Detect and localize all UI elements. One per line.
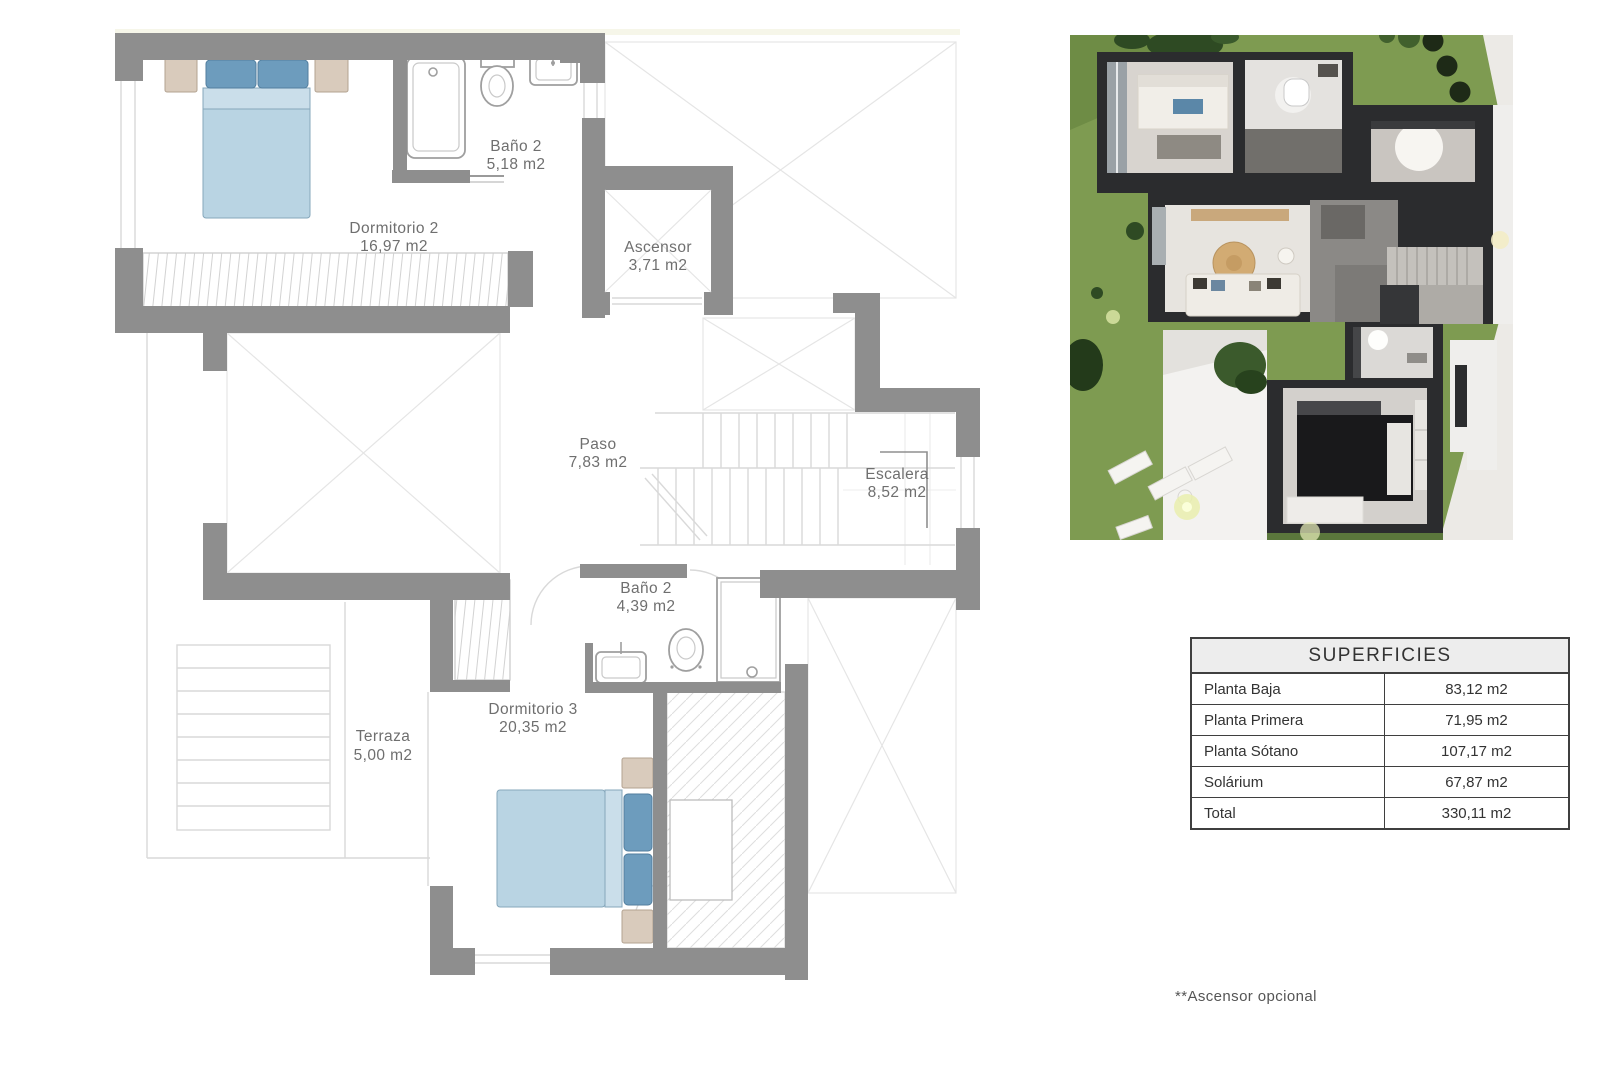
bedroom-top: [1107, 62, 1233, 173]
pillow: [258, 60, 308, 88]
row-value: 83,12 m2: [1385, 674, 1568, 704]
nightstand: [622, 910, 653, 943]
row-value: 67,87 m2: [1385, 767, 1568, 797]
hall-upper: [1371, 121, 1475, 182]
label-dorm2-area: 16,97 m2: [360, 238, 428, 255]
window-left-dorm2: [121, 79, 135, 253]
double-height-room: [227, 333, 500, 573]
page: Baño 2 5,18 m2 Dormitorio 2 16,97 m2 Asc…: [0, 0, 1620, 1080]
nightstand: [622, 758, 653, 788]
label-bano2-top-name: Baño 2: [490, 138, 542, 155]
label-ascensor-area: 3,71 m2: [629, 257, 688, 274]
bathtub: [407, 57, 465, 158]
terraza-outline: [147, 333, 430, 886]
bush: [1091, 287, 1103, 299]
row-label: Planta Primera: [1192, 705, 1385, 735]
table-row: Solárium 67,87 m2: [1192, 767, 1568, 798]
living-room: [1152, 205, 1310, 316]
row-value: 330,11 m2: [1385, 798, 1568, 828]
label-dorm3-area: 20,35 m2: [499, 719, 567, 736]
label-escalera-name: Escalera: [865, 466, 929, 483]
void-room-bottom-right: [808, 598, 956, 893]
stair-void: [703, 318, 855, 410]
bathroom-top: [1245, 60, 1342, 173]
row-label: Solárium: [1192, 767, 1385, 797]
label-terraza-name: Terraza: [356, 728, 410, 745]
row-label: Planta Baja: [1192, 674, 1385, 704]
white-building-edge: [1450, 340, 1497, 470]
floor-lamp: [1278, 248, 1294, 264]
label-dorm3-name: Dormitorio 3: [488, 701, 577, 718]
label-ascensor-name: Ascensor: [624, 239, 692, 256]
surfaces-table-title: SUPERFICIES: [1192, 639, 1568, 674]
table-row: Total 330,11 m2: [1192, 798, 1568, 828]
bedroom-bottom: [1283, 388, 1427, 524]
bed-dorm3: [497, 758, 653, 943]
terraza-stairs: [177, 645, 330, 830]
label-bano2-bot-name: Baño 2: [620, 580, 672, 597]
footnote: **Ascensor opcional: [1175, 988, 1317, 1005]
row-label: Total: [1192, 798, 1385, 828]
nightstand: [315, 58, 348, 92]
closet-dorm3: [667, 692, 785, 948]
toilet-top: [481, 52, 514, 106]
row-label: Planta Sótano: [1192, 736, 1385, 766]
nightstand: [165, 58, 197, 92]
sink-bottom: [596, 642, 646, 683]
label-bano2-bot-area: 4,39 m2: [617, 598, 676, 615]
pillow: [624, 794, 652, 851]
label-escalera-area: 8,52 m2: [868, 484, 927, 501]
toilet: [1284, 79, 1309, 106]
label-dorm2-name: Dormitorio 2: [349, 220, 438, 237]
bush: [1126, 222, 1144, 240]
bed-dorm2: [165, 58, 348, 218]
toilet-bottom: [669, 629, 703, 671]
label-paso-name: Paso: [580, 436, 617, 453]
table-row: Planta Sótano 107,17 m2: [1192, 736, 1568, 767]
window-right-edge: [961, 457, 974, 528]
label-terraza-area: 5,00 m2: [354, 747, 413, 764]
table-row: Planta Baja 83,12 m2: [1192, 674, 1568, 705]
closet-dorm2: [143, 253, 508, 307]
render-3d: [1035, 35, 1513, 540]
pillow: [624, 854, 652, 905]
window-bottom-dorm3: [475, 948, 550, 975]
surfaces-table: SUPERFICIES Planta Baja 83,12 m2 Planta …: [1190, 637, 1570, 830]
pillow: [206, 60, 256, 88]
window-top-right: [584, 82, 597, 118]
row-value: 107,17 m2: [1385, 736, 1568, 766]
bathroom-small: [1353, 327, 1433, 378]
label-paso-area: 7,83 m2: [569, 454, 628, 471]
row-value: 71,95 m2: [1385, 705, 1568, 735]
table-row: Planta Primera 71,95 m2: [1192, 705, 1568, 736]
pillow: [1173, 99, 1203, 114]
label-bano2-top-area: 5,18 m2: [487, 156, 546, 173]
